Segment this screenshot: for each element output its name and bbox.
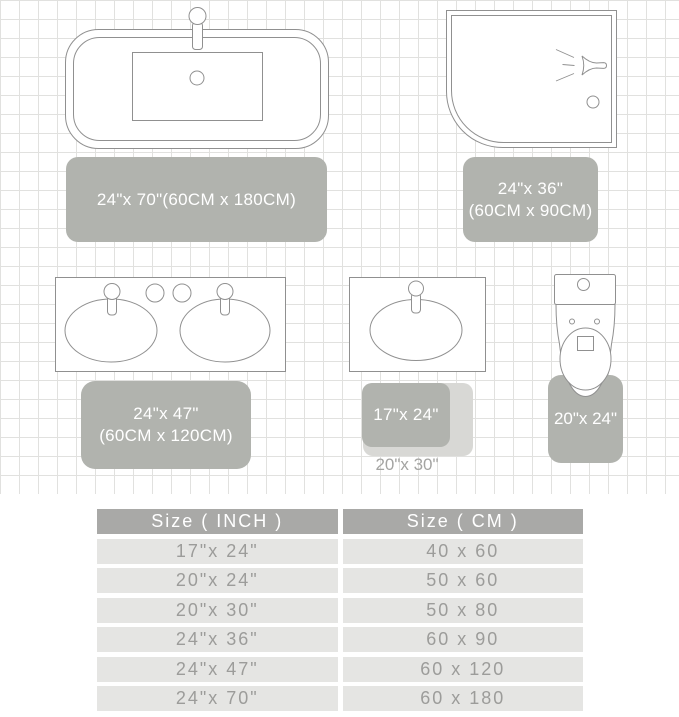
sink-rug-label: 17"x 24" bbox=[373, 404, 439, 426]
size-table-header-row: Size ( INCH ) Size ( CM ) bbox=[97, 509, 583, 534]
shower-rug: 24"x 36" (60CM x 90CM) bbox=[463, 157, 598, 242]
sink-rug-20x30-label: 20"x 30" bbox=[351, 455, 463, 475]
shower-rug-size-cm: (60CM x 90CM) bbox=[469, 200, 593, 222]
cell-inch: 24"x 70" bbox=[97, 686, 338, 711]
cell-inch: 24"x 36" bbox=[97, 627, 338, 652]
bathtub-rug: 24"x 70"(60CM x 180CM) bbox=[66, 157, 327, 242]
cell-cm: 50 x 60 bbox=[343, 568, 584, 593]
col-header-cm: Size ( CM ) bbox=[343, 509, 584, 534]
cell-inch: 20"x 30" bbox=[97, 598, 338, 623]
col-header-inch: Size ( INCH ) bbox=[97, 509, 338, 534]
cell-cm: 60 x 120 bbox=[343, 657, 584, 682]
sink-rug-17x24: 17"x 24" bbox=[362, 383, 450, 447]
table-row: 20"x 30" 50 x 80 bbox=[97, 598, 583, 623]
bath-rug-size-guide: 24"x 70"(60CM x 180CM) 24"x 36" (60CM x … bbox=[0, 0, 679, 717]
cell-inch: 20"x 24" bbox=[97, 568, 338, 593]
cell-cm: 60 x 180 bbox=[343, 686, 584, 711]
table-row: 24"x 70" 60 x 180 bbox=[97, 686, 583, 711]
vanity-rug-size-inch: 24"x 47" bbox=[133, 403, 199, 425]
cell-cm: 40 x 60 bbox=[343, 539, 584, 564]
vanity-rug: 24"x 47" (60CM x 120CM) bbox=[81, 381, 251, 469]
table-row: 17"x 24" 40 x 60 bbox=[97, 539, 583, 564]
bathtub-rug-label: 24"x 70"(60CM x 180CM) bbox=[97, 189, 296, 211]
toilet-rug: 20"x 24" bbox=[548, 375, 623, 463]
cell-inch: 17"x 24" bbox=[97, 539, 338, 564]
vanity-rug-size-cm: (60CM x 120CM) bbox=[99, 425, 233, 447]
table-row: 24"x 47" 60 x 120 bbox=[97, 657, 583, 682]
cell-cm: 60 x 90 bbox=[343, 627, 584, 652]
cell-cm: 50 x 80 bbox=[343, 598, 584, 623]
shower-rug-size-inch: 24"x 36" bbox=[498, 178, 564, 200]
table-row: 20"x 24" 50 x 60 bbox=[97, 568, 583, 593]
size-table: Size ( INCH ) Size ( CM ) 17"x 24" 40 x … bbox=[97, 509, 583, 716]
cell-inch: 24"x 47" bbox=[97, 657, 338, 682]
toilet-rug-label: 20"x 24" bbox=[554, 408, 617, 430]
table-row: 24"x 36" 60 x 90 bbox=[97, 627, 583, 652]
